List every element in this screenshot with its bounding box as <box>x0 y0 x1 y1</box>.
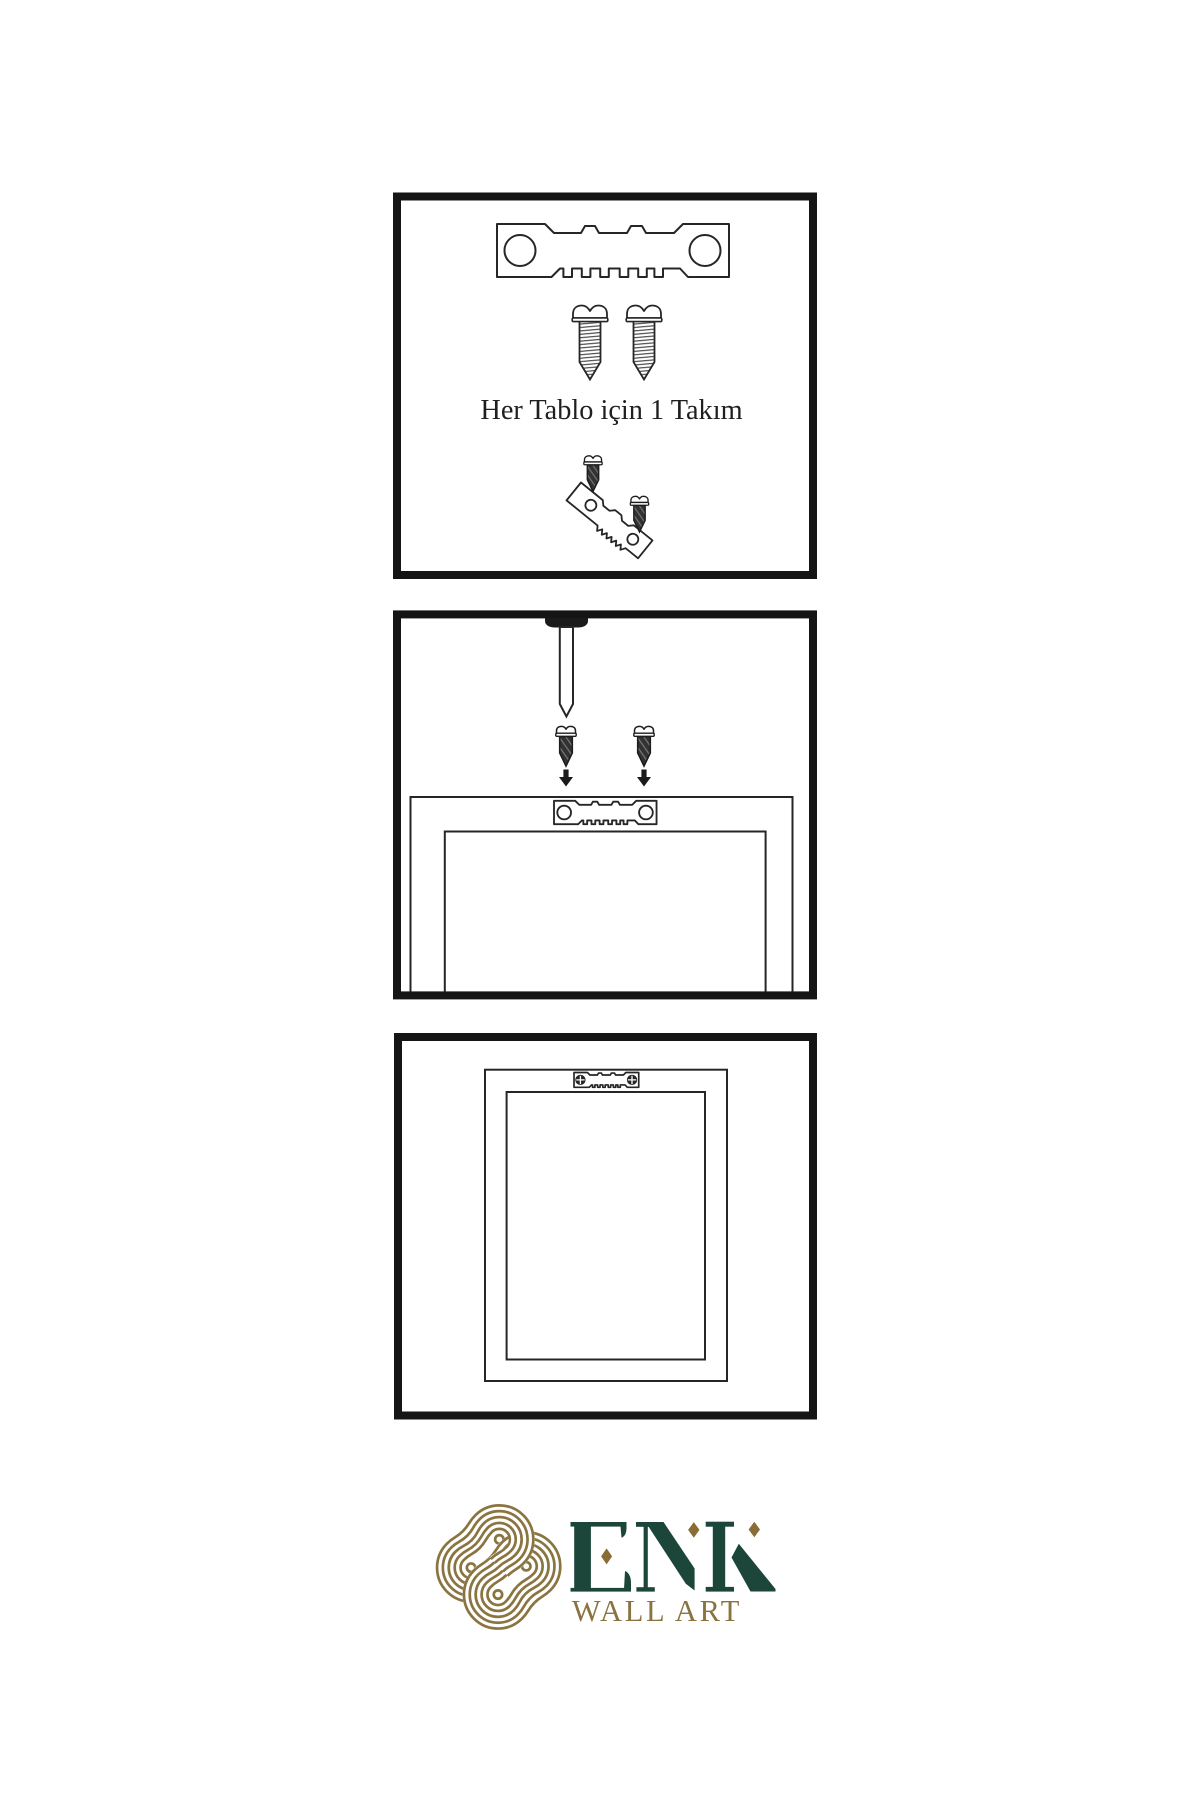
svg-text:Her Tablo için 1 Takım: Her Tablo için 1 Takım <box>480 395 742 426</box>
svg-text:WALL ART: WALL ART <box>572 1594 742 1628</box>
